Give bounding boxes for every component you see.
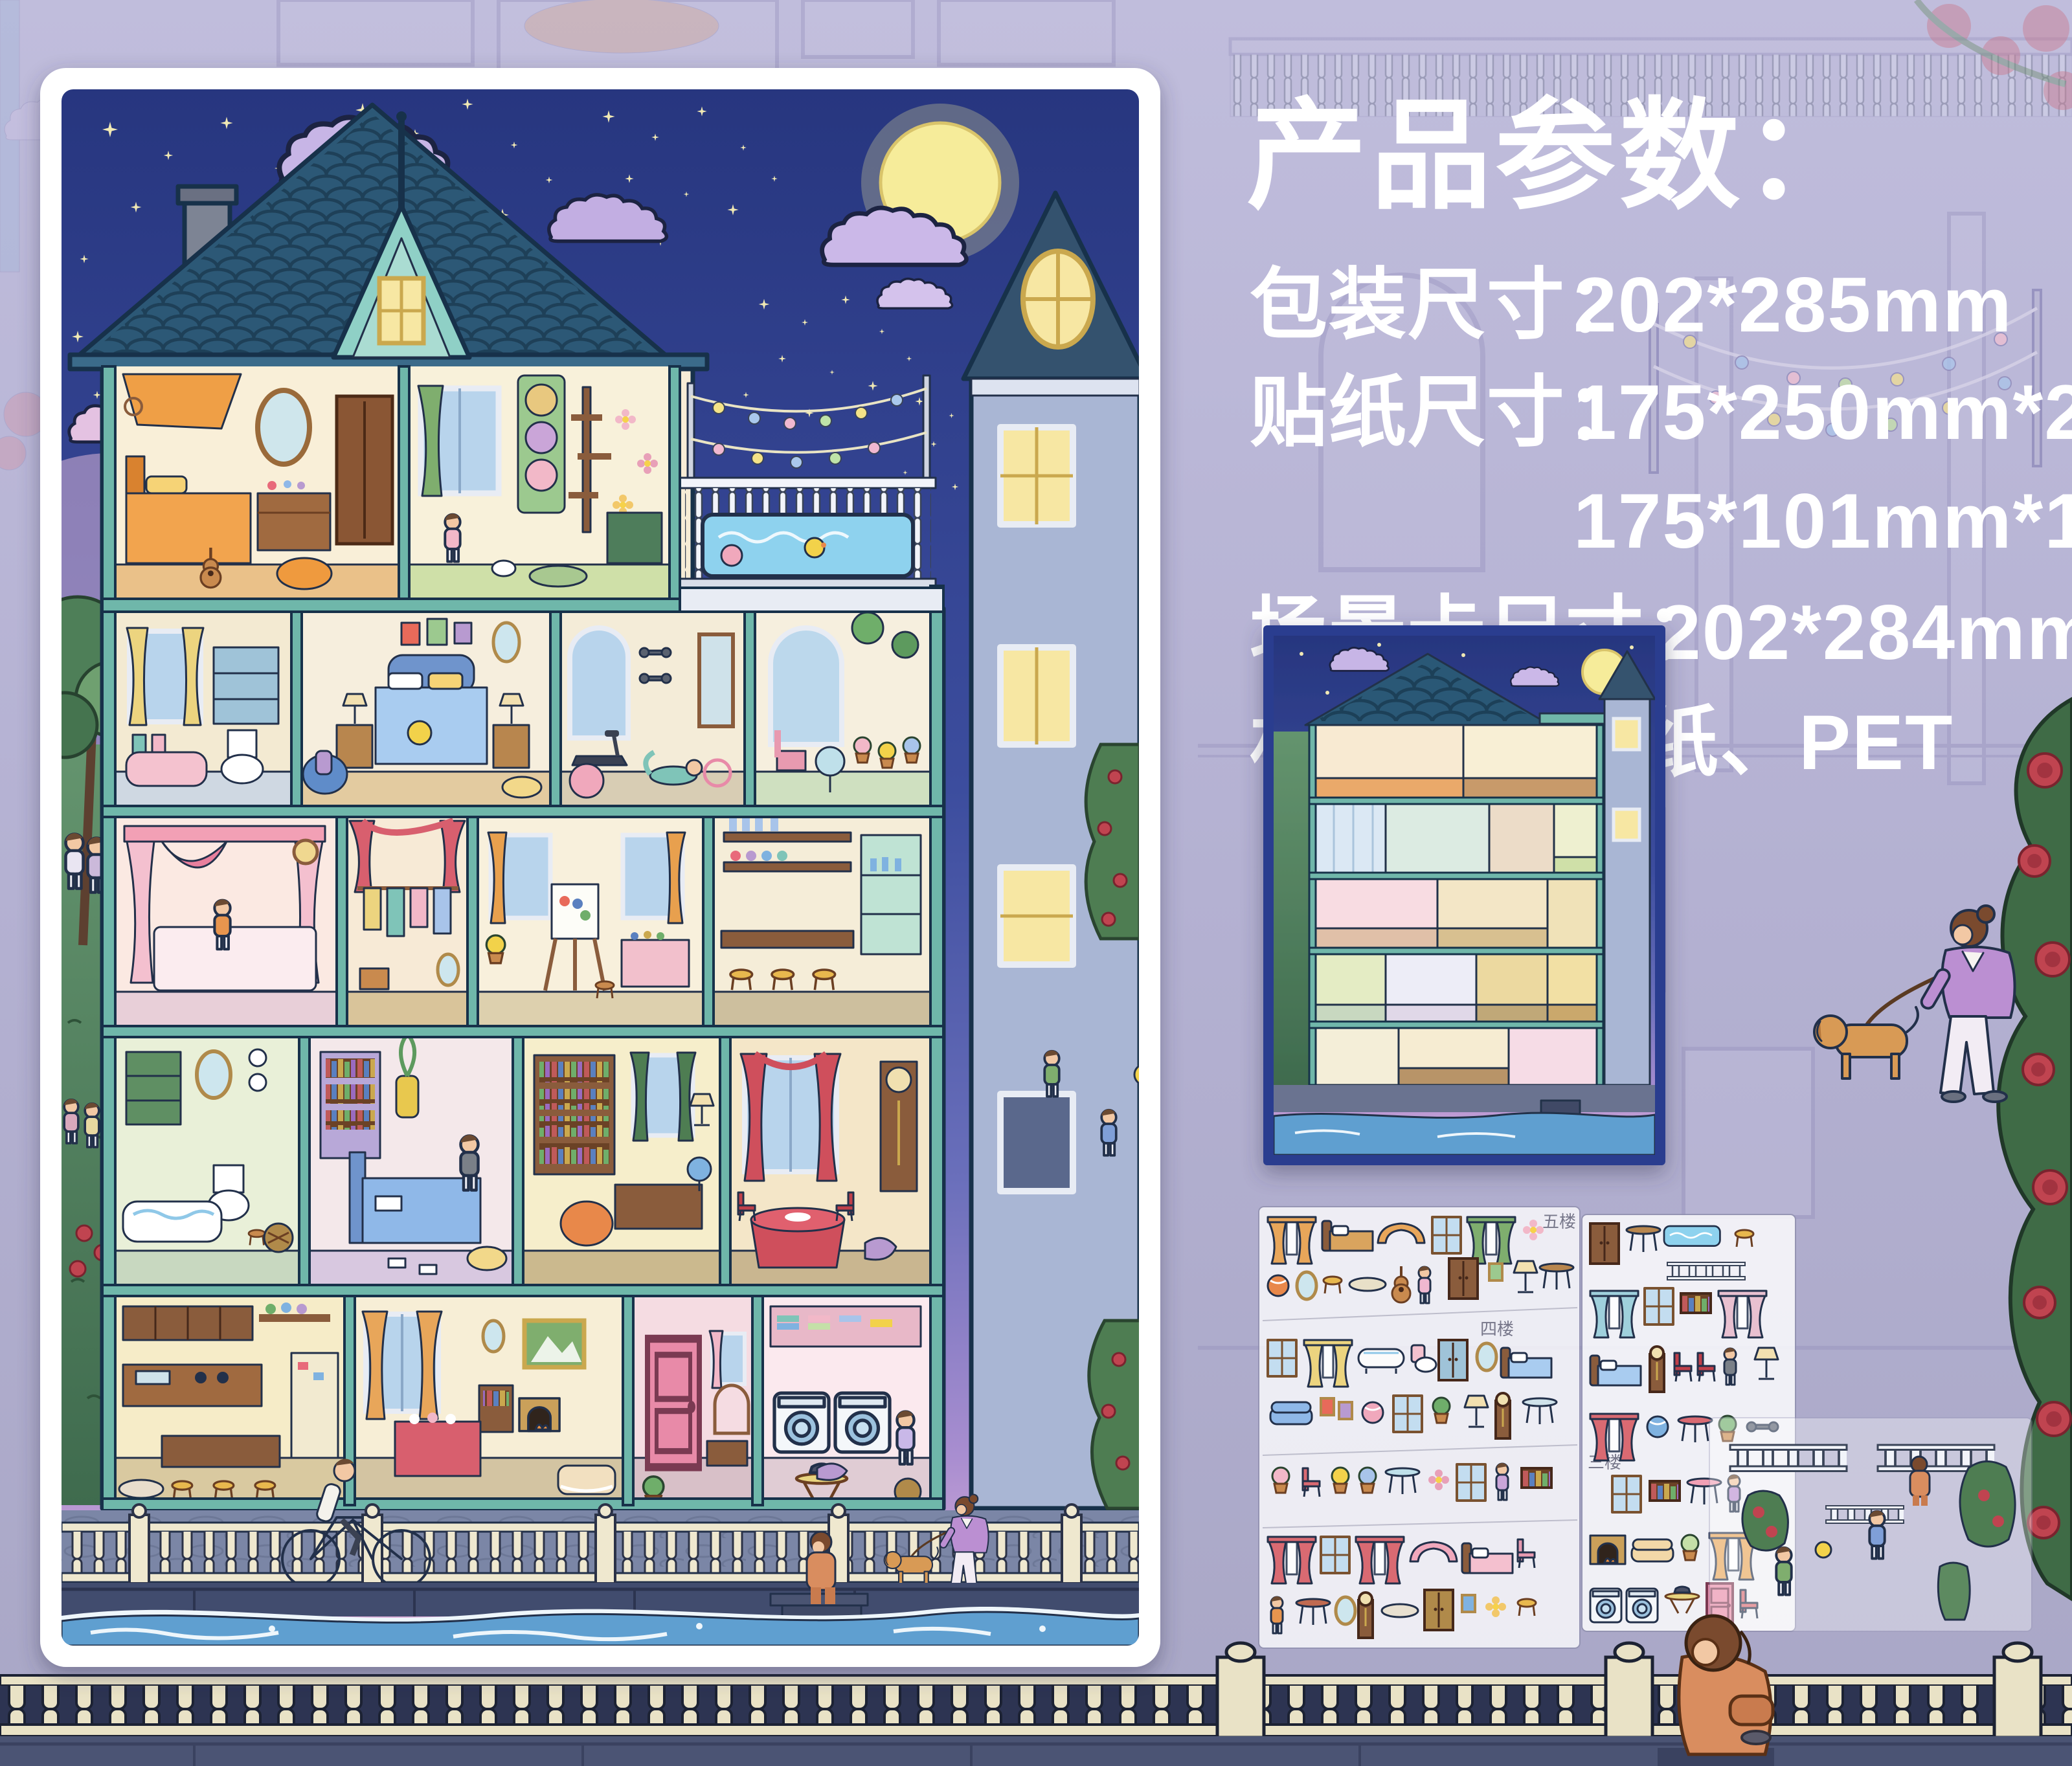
room-bathroom-laundry [115,612,291,806]
room-blue-bedroom [302,612,550,806]
spec-line-2: 贴纸尺寸：175*250mm*2 [1250,369,2072,456]
room-garden-balcony [755,612,930,806]
sheet-floor-label-4: 四楼 [1480,1319,1514,1339]
room-library [523,1037,720,1285]
room-living [355,1296,623,1505]
room-art-studio [478,817,703,1026]
room-dining [730,1037,930,1285]
room-laundry [763,1296,930,1505]
scene-card [1263,625,1665,1165]
room-orange-bedroom [115,366,399,599]
room-gym [561,612,745,806]
room-pink-bedroom [115,817,337,1026]
sheet-floor-label-5: 五楼 [1542,1212,1576,1231]
room-kitchen [115,1296,344,1505]
room-craft [409,366,670,599]
room-study-bedroom [310,1034,513,1285]
spec-line-1: 包装尺寸：202*285mm [1250,262,2013,348]
room-green-bathroom [115,1037,299,1285]
pool-duck [805,538,824,557]
poster [0,68,1160,1667]
spec-line-3: 175*101mm*1 [1573,478,2072,564]
product-specs-title: 产品参数： [1246,89,1868,223]
neighbor-building [963,193,1147,1508]
sticker-sheet-pet [1709,1418,2032,1631]
room-home-bar [714,817,930,1026]
room-dressing [347,817,467,1026]
room-entry [633,1296,752,1507]
product-detail-image: 产品参数： 包装尺寸：202*285mm 贴纸尺寸：175*250mm*2 17… [0,0,2072,1766]
river [62,1607,1139,1646]
sticker-sheet-paper-1: 五楼 四楼 [1259,1207,1580,1648]
